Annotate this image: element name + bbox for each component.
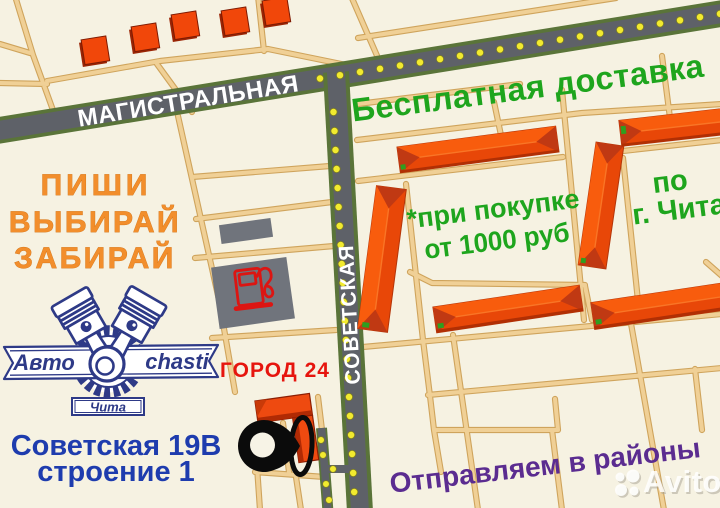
svg-text:Авто: Авто [12,350,75,375]
svg-text:ЗАБИРАЙ: ЗАБИРАЙ [14,241,176,275]
svg-text:ГОРОД 24: ГОРОД 24 [220,359,330,382]
svg-text:строение 1: строение 1 [37,456,195,488]
svg-text:ВЫБИРАЙ: ВЫБИРАЙ [9,205,181,239]
svg-text:Avito: Avito [643,464,720,499]
svg-text:chasti: chasti [145,349,209,374]
svg-text:ПИШИ: ПИШИ [41,169,152,202]
svg-text:Чита: Чита [90,400,126,415]
